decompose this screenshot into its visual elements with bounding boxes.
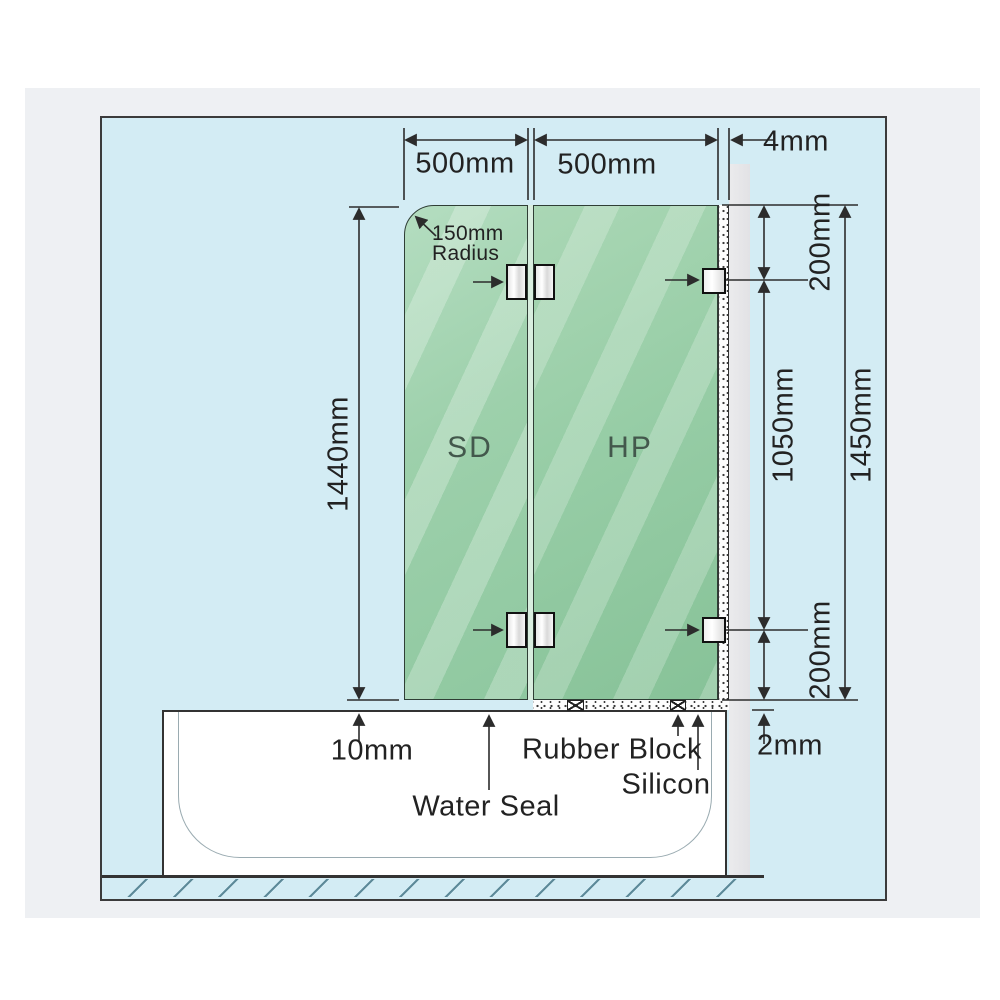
panel-label-hp: HP	[607, 431, 653, 465]
dim-label-bottom-bracket: 200mm	[807, 600, 836, 699]
dim-label-seal-thickness: 2mm	[757, 732, 823, 761]
page: 500mm 500mm 4mm 150mm Radius 1440mm 200m…	[0, 0, 1000, 1000]
installation-diagram: 500mm 500mm 4mm 150mm Radius 1440mm 200m…	[100, 116, 887, 901]
label-water-seal: Water Seal	[412, 793, 559, 822]
corner-radius-word: Radius	[432, 244, 504, 264]
panel-label-sd: SD	[447, 431, 493, 465]
corner-radius-value: 150mm	[432, 224, 504, 244]
dim-label-wall-gap: 4mm	[763, 128, 829, 157]
dim-label-hp-height: 1450mm	[848, 367, 877, 483]
dim-label-bracket-span: 1050mm	[770, 367, 799, 483]
dim-label-bath-gap: 10mm	[331, 737, 414, 766]
label-silicon: Silicon	[622, 771, 711, 800]
dim-label-hp-width: 500mm	[557, 151, 656, 180]
dim-label-sd-width: 500mm	[415, 150, 514, 179]
dim-label-top-bracket: 200mm	[807, 192, 836, 291]
drawing-sheet: 500mm 500mm 4mm 150mm Radius 1440mm 200m…	[25, 88, 980, 918]
dim-label-sd-height: 1440mm	[325, 396, 354, 512]
label-rubber-block: Rubber Block	[522, 736, 702, 765]
corner-radius-note: 150mm Radius	[432, 224, 504, 264]
